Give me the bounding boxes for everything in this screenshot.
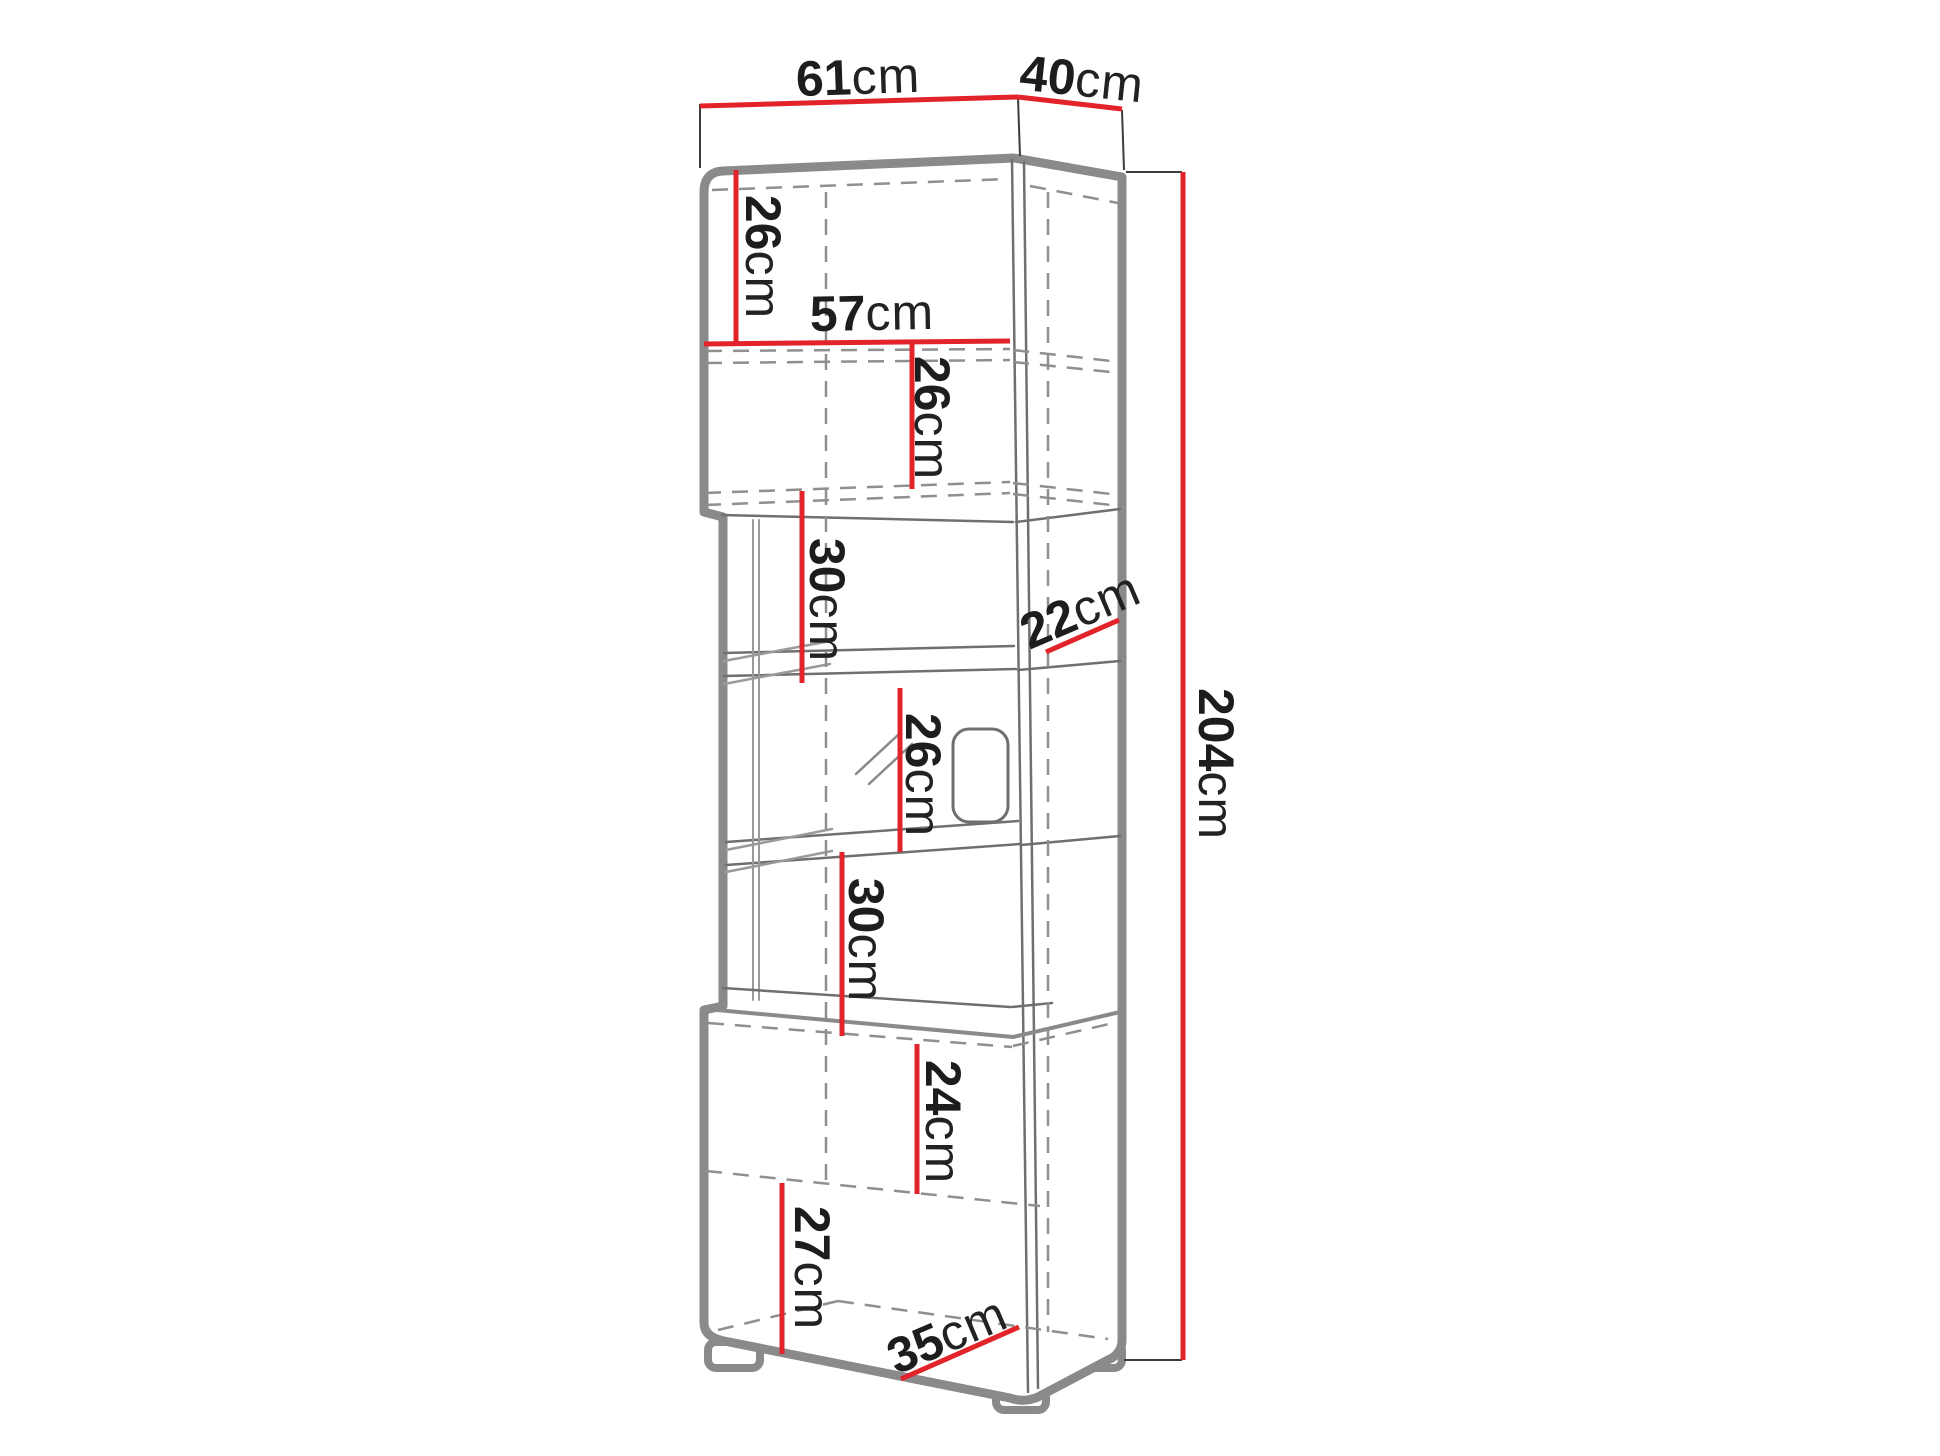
dim-unit: cm	[1073, 50, 1147, 113]
dim-label-upper-section-height: 26cm	[738, 195, 788, 319]
dim-label-middle-lower-height: 30cm	[841, 878, 891, 1002]
dim-value: 26	[904, 356, 960, 412]
dim-value: 26	[735, 195, 791, 251]
dim-unit: cm	[735, 250, 791, 319]
dim-unit: cm	[799, 593, 855, 662]
cabinet-line-drawing	[0, 0, 1940, 1456]
dim-label-total-height: 204cm	[1191, 688, 1241, 840]
dim-value: 40	[1017, 45, 1078, 107]
dim-unit: cm	[851, 47, 922, 105]
dim-unit: cm	[865, 284, 935, 341]
dim-value: 204	[1188, 688, 1244, 771]
dim-label-base-lower-height: 27cm	[787, 1206, 837, 1330]
dim-unit: cm	[838, 933, 894, 1002]
dim-label-top-depth: 40cm	[1018, 48, 1147, 111]
dimension-diagram: 61cm 40cm 26cm 57cm 26cm 30cm 22cm 26cm …	[0, 0, 1940, 1456]
dim-line-upper-inner-width	[704, 341, 1010, 344]
dim-value: 26	[895, 713, 951, 769]
dim-unit: cm	[895, 768, 951, 837]
dim-unit: cm	[784, 1261, 840, 1330]
dim-label-upper-shelf-height: 26cm	[907, 356, 957, 480]
dim-unit: cm	[915, 1115, 971, 1184]
dim-value: 24	[915, 1060, 971, 1116]
dim-value: 61	[795, 49, 853, 107]
dim-label-middle-glass-height: 26cm	[898, 713, 948, 837]
dim-label-top-width: 61cm	[795, 50, 921, 104]
dim-unit: cm	[1188, 771, 1244, 840]
dim-label-base-upper-height: 24cm	[918, 1060, 968, 1184]
dim-label-upper-inner-width: 57cm	[809, 287, 934, 339]
dim-label-middle-upper-height: 30cm	[802, 538, 852, 662]
dim-value: 27	[784, 1206, 840, 1262]
dim-value: 30	[838, 878, 894, 934]
dim-unit: cm	[904, 411, 960, 480]
dim-value: 30	[799, 538, 855, 594]
dim-value: 57	[809, 285, 866, 342]
